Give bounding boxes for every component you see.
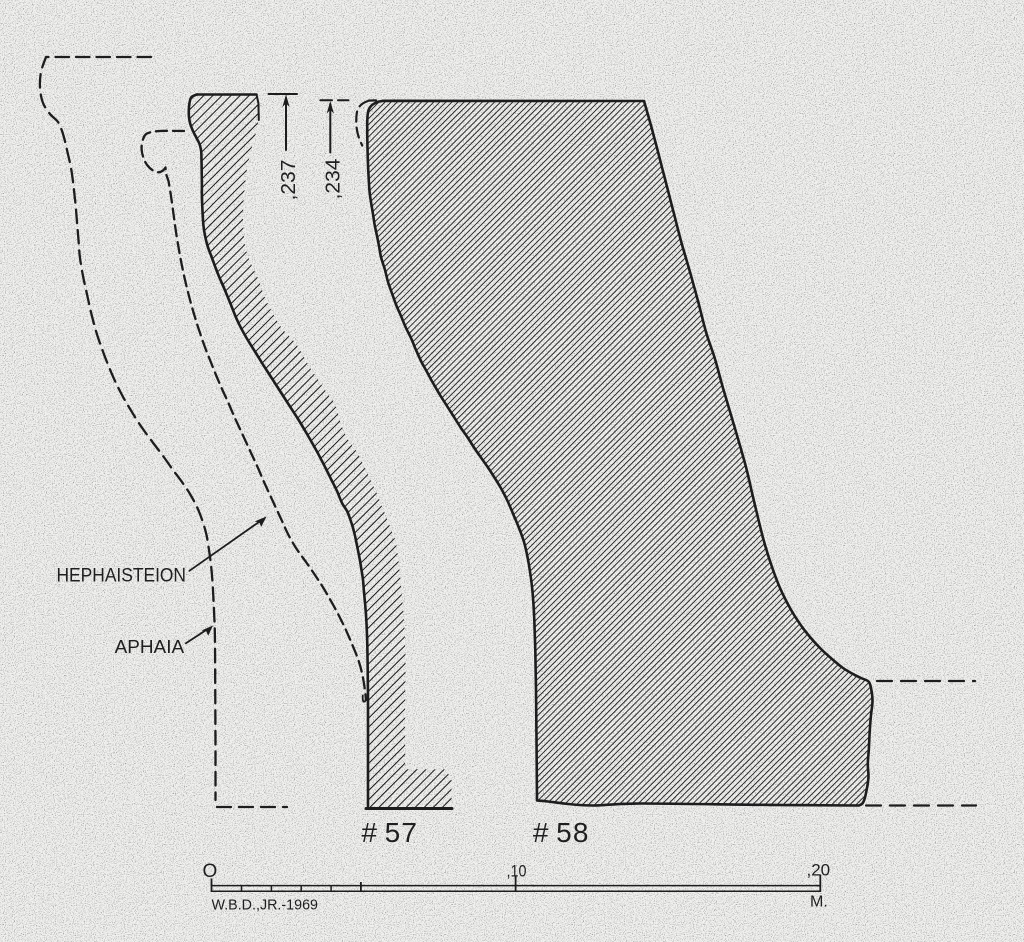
svg-text:# 57: # 57	[361, 817, 418, 848]
svg-text:,20: ,20	[807, 861, 831, 880]
svg-text:,237: ,237	[277, 160, 300, 201]
svg-text:# 58: # 58	[533, 817, 590, 848]
svg-text:O: O	[203, 861, 218, 882]
svg-text:W.B.D.,JR.-1969: W.B.D.,JR.-1969	[212, 898, 319, 914]
svg-text:APHAIA: APHAIA	[115, 636, 185, 657]
svg-text:,10: ,10	[507, 863, 527, 881]
svg-text:HEPHAISTEION: HEPHAISTEION	[57, 564, 187, 586]
svg-text:,234: ,234	[322, 159, 345, 200]
svg-text:M.: M.	[810, 894, 828, 911]
